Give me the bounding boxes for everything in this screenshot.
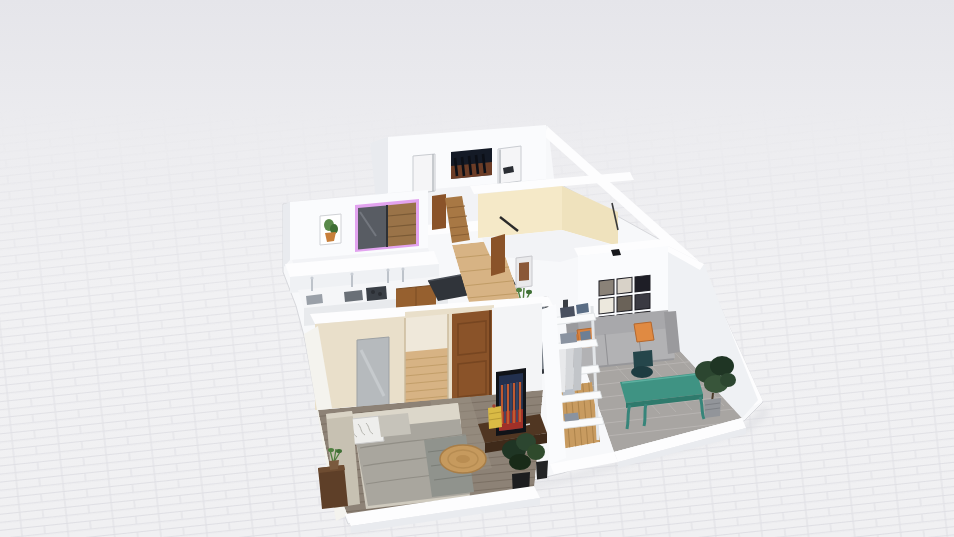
folded-clothes [560,306,575,318]
kitchen-sink-basin[interactable] [344,290,363,302]
floorplan-canvas[interactable] [0,0,954,537]
wood-door-upper[interactable] [432,194,446,230]
orange-pillow [634,322,654,342]
sliding-door-wardrobe[interactable] [355,199,419,252]
folded-clothes [564,412,579,421]
movie-poster[interactable] [451,148,492,179]
round-jute-rug[interactable] [440,445,486,473]
folded-clothes [580,331,591,341]
gallery-frame [617,295,632,312]
white-door-left[interactable] [413,154,435,194]
3d-viewport[interactable] [0,0,954,537]
yellow-side-table[interactable] [488,404,502,429]
desk-chair[interactable] [631,350,653,378]
white-door-right[interactable] [498,146,521,184]
grey-pillow [378,413,411,437]
bedroom[interactable] [304,296,553,533]
gallery-frame [635,275,650,292]
framed-picture[interactable] [516,256,532,288]
plant-pot [536,461,548,480]
wardrobe-room-west-wall [283,202,290,268]
gallery-frame [617,277,632,294]
cream-room-north-wall [478,186,562,238]
botanical-art[interactable] [320,214,341,245]
hallway-wood-floor [405,348,448,406]
bedroom-wood-door[interactable] [452,310,492,408]
gallery-frame [599,297,614,314]
cooktop[interactable] [366,286,387,301]
wardrobe-room[interactable] [283,190,439,293]
folded-clothes [560,332,577,344]
door-opening[interactable] [405,314,448,406]
gallery-frame [599,279,614,296]
wood-door-frame[interactable] [491,234,505,276]
gallery-frame [635,293,650,310]
